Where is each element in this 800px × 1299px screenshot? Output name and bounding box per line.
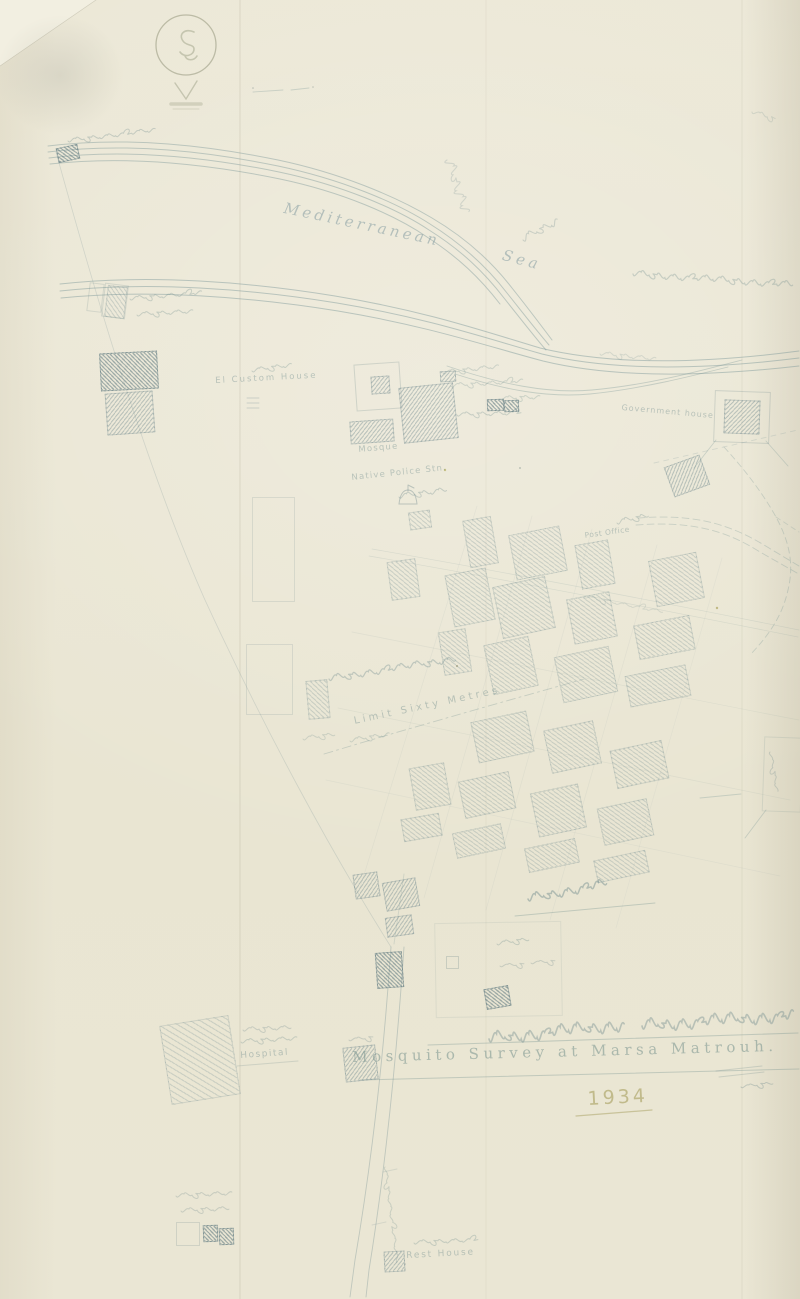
map-year: 1934 bbox=[587, 1085, 648, 1110]
rest-house: Rest House bbox=[406, 1247, 475, 1261]
sea-word-1: Mediterranean bbox=[282, 199, 442, 250]
sea-word-2: Sea bbox=[500, 246, 543, 274]
survey-map-sheet: MediterraneanSeaGovernment houseEl Custo… bbox=[0, 0, 800, 1299]
hospital: Hospital bbox=[240, 1048, 289, 1061]
native-police-station: Native Police Stn. bbox=[351, 463, 448, 483]
map-labels-layer: MediterraneanSeaGovernment houseEl Custo… bbox=[0, 0, 800, 1299]
map-title: Mosquito Survey at Marsa Matrouh. bbox=[352, 1037, 778, 1066]
limit-sixty-metres: Limit Sixty Metres bbox=[353, 685, 501, 727]
custom-house: El Custom House bbox=[215, 371, 318, 386]
government-house: Government house bbox=[621, 403, 714, 420]
mosque: Mosque bbox=[358, 441, 399, 454]
post-office: Post Office bbox=[584, 525, 630, 540]
